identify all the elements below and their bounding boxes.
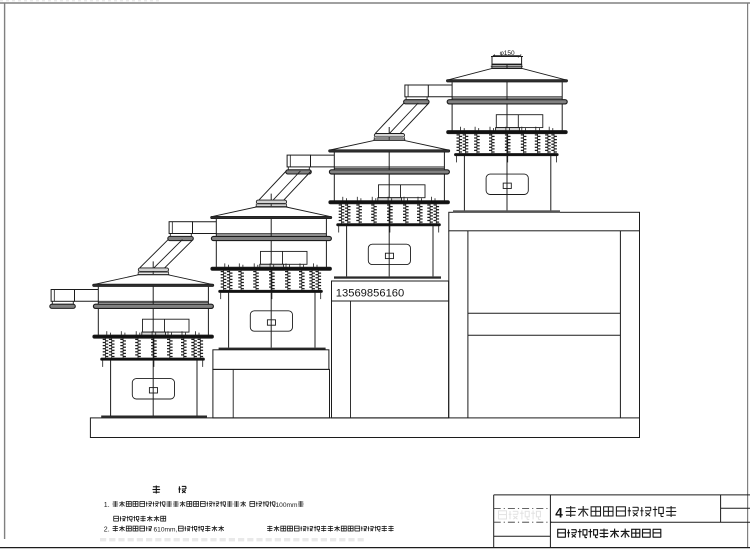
svg-text:φ150: φ150 bbox=[500, 50, 515, 57]
svg-text:1.: 1. bbox=[104, 502, 110, 509]
svg-text:4: 4 bbox=[555, 506, 563, 521]
svg-text:100mm: 100mm bbox=[276, 502, 298, 509]
svg-text:2.: 2. bbox=[104, 527, 110, 534]
svg-text:13569856160: 13569856160 bbox=[336, 288, 404, 300]
svg-text:610mm,: 610mm, bbox=[154, 527, 178, 534]
